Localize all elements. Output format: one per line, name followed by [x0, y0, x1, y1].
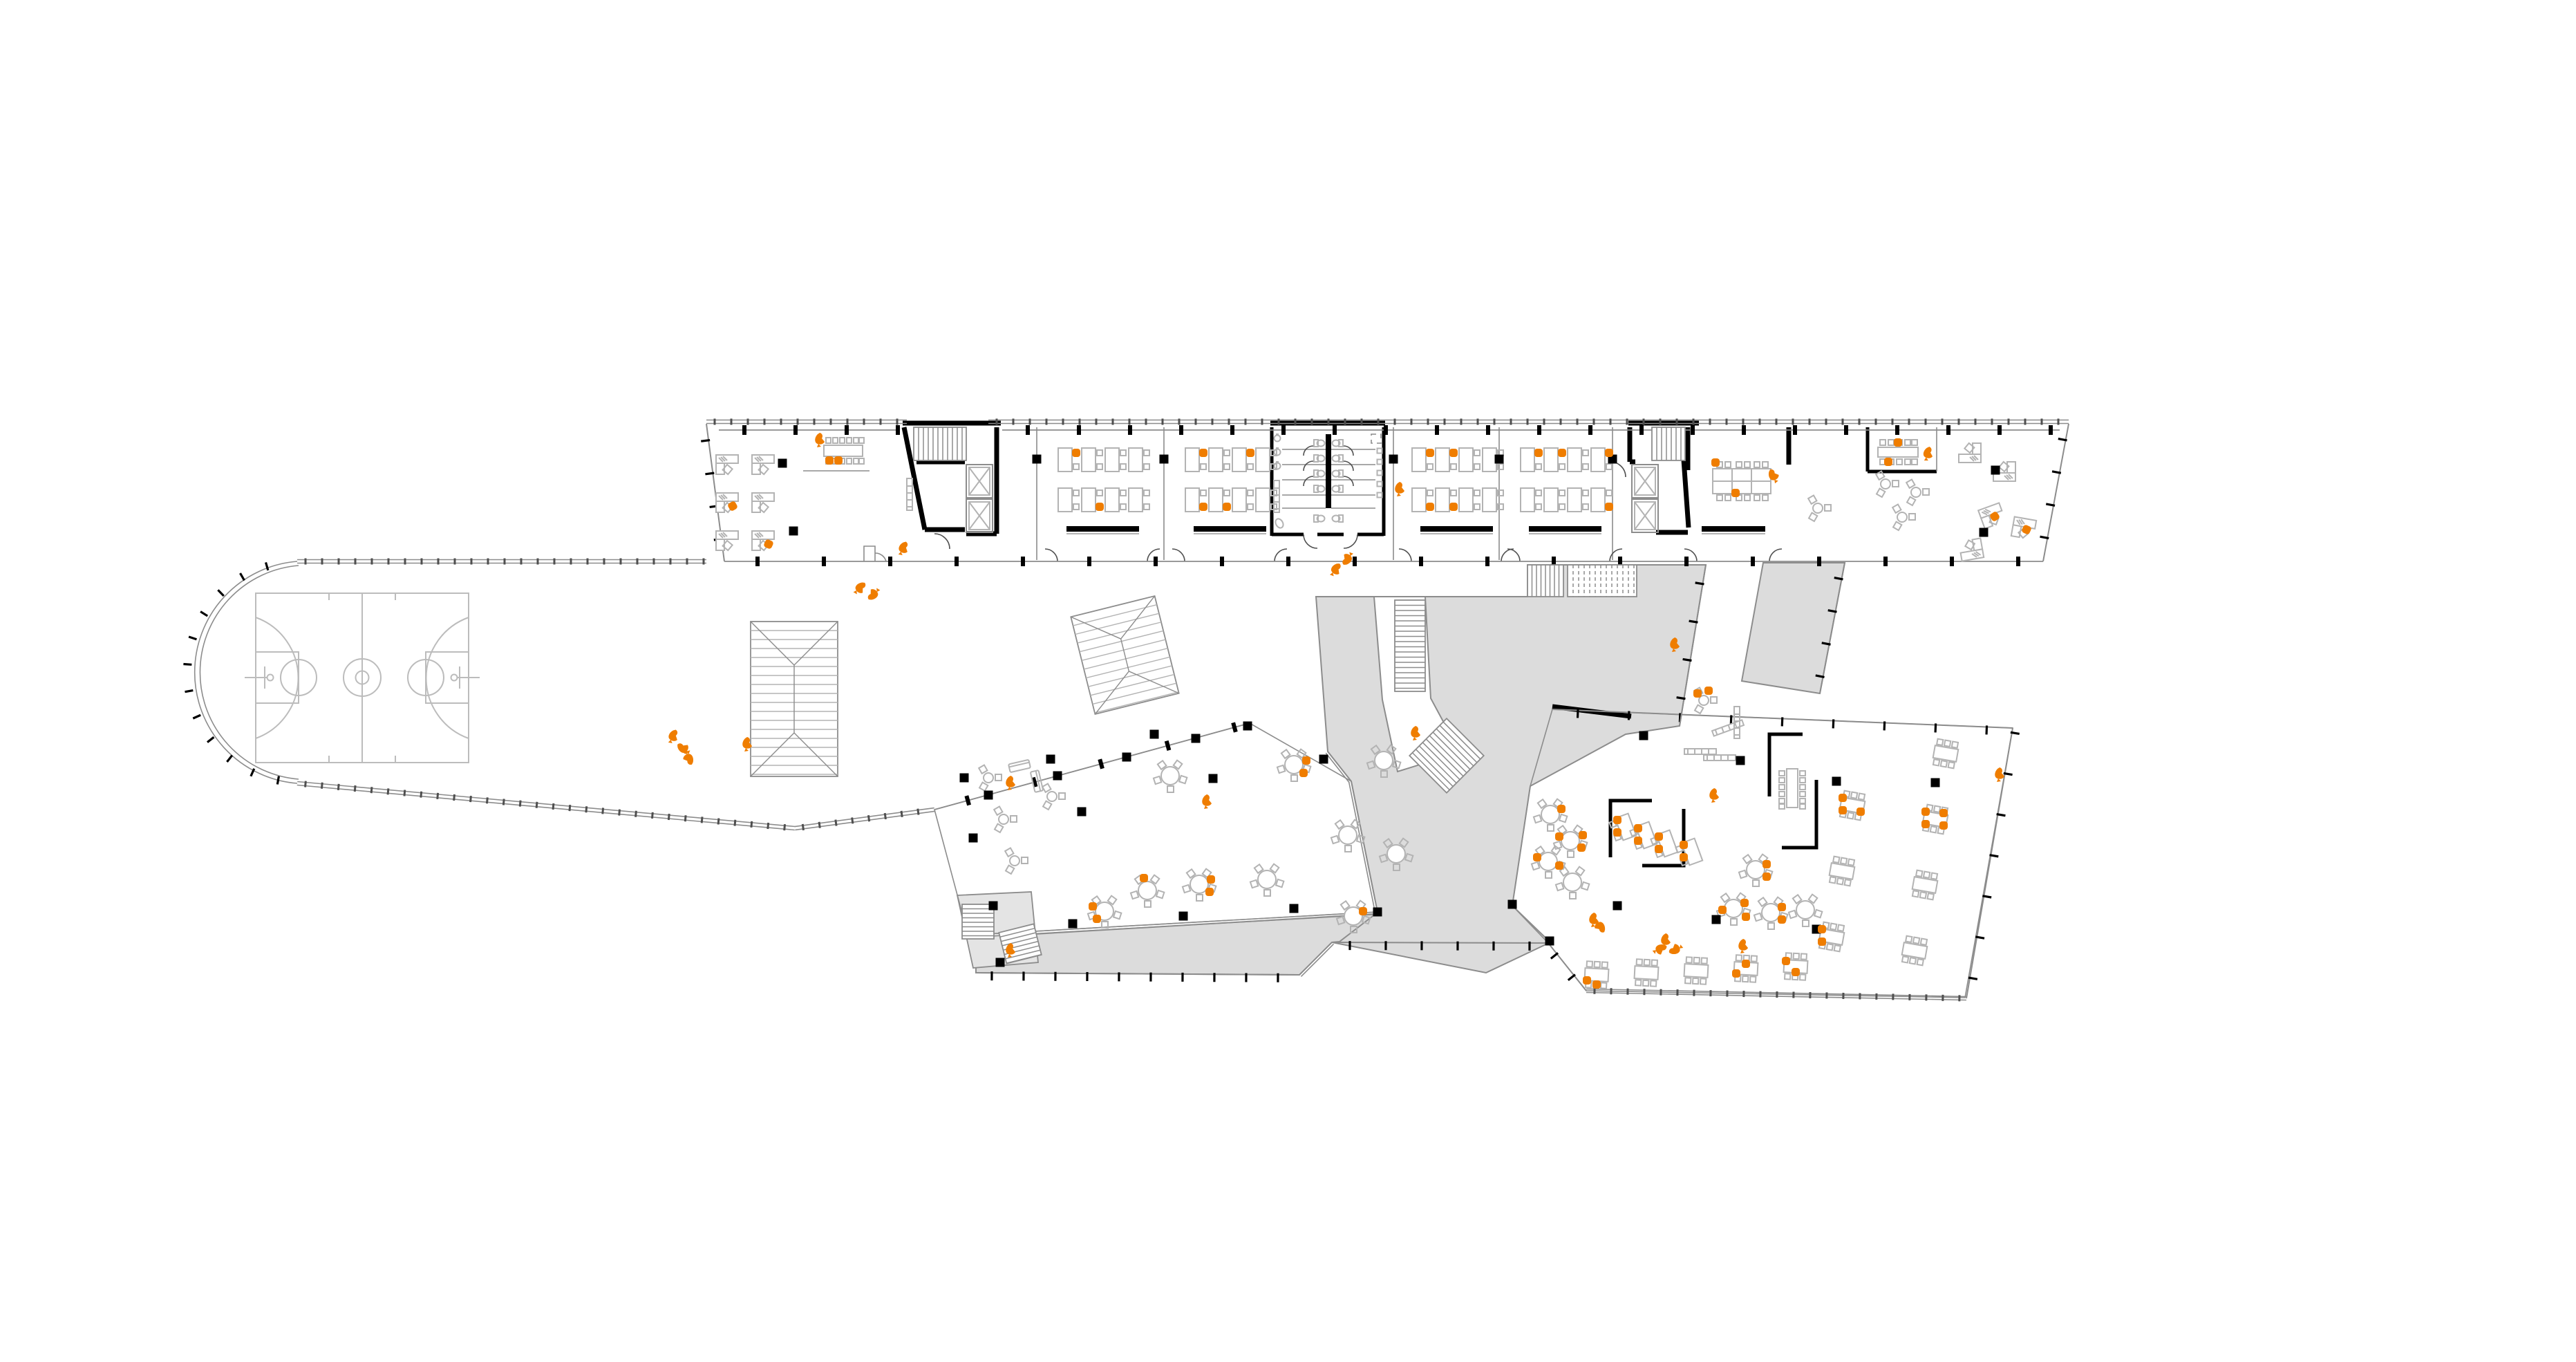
- skylight-hatch: [751, 622, 838, 776]
- desk-pair: [1209, 448, 1230, 472]
- chair-o: [1693, 689, 1702, 698]
- strip-entrance-jog: [864, 546, 886, 561]
- chair-o: [1093, 915, 1101, 923]
- chair-o: [1655, 832, 1663, 841]
- chair-o: [1782, 957, 1790, 965]
- chair-o: [1579, 831, 1587, 839]
- chair-o: [1762, 873, 1771, 881]
- table6: [1828, 856, 1856, 886]
- col: [1639, 731, 1648, 740]
- rtable5: [1250, 864, 1284, 896]
- person-o: [815, 433, 825, 447]
- ldesk: [1959, 443, 1981, 463]
- chair-o: [1533, 853, 1541, 861]
- elev: [966, 499, 993, 532]
- chair-o: [1613, 816, 1621, 824]
- stair-flight: [1652, 427, 1685, 460]
- chair-o: [1711, 458, 1720, 467]
- col: [1033, 455, 1042, 464]
- wc: [1333, 470, 1344, 477]
- desk-pair: [1105, 448, 1126, 472]
- chair-o: [1921, 808, 1930, 816]
- col: [1319, 755, 1328, 764]
- stair-flight: [1395, 600, 1425, 691]
- person-o: [896, 540, 910, 557]
- rtable5: [1183, 869, 1216, 901]
- gym-wing-tip-inner: [200, 566, 299, 779]
- col: [984, 791, 993, 800]
- chair-o: [1939, 821, 1948, 830]
- chair-o: [1199, 449, 1207, 457]
- chair-o: [1140, 874, 1148, 882]
- person-o: [865, 586, 881, 603]
- desk-pair: [1082, 448, 1102, 472]
- rtable3: [1042, 784, 1065, 810]
- rtable3: [1005, 848, 1028, 874]
- chair-o: [825, 456, 834, 465]
- rtable3: [1808, 496, 1831, 521]
- urinal: [1378, 482, 1382, 487]
- chair-o: [1680, 853, 1688, 861]
- chair-o: [1884, 458, 1892, 466]
- chair-o: [1732, 969, 1740, 978]
- desk-pair: [1521, 488, 1541, 512]
- chair-o: [1605, 503, 1613, 511]
- desk-pair: [1568, 448, 1588, 472]
- shelf: [1704, 755, 1736, 761]
- col: [1980, 528, 1989, 537]
- elev: [966, 465, 993, 498]
- wc: [1314, 470, 1325, 477]
- chair-o: [1555, 861, 1563, 870]
- chair-o: [1072, 449, 1080, 457]
- chair-o: [1089, 902, 1097, 911]
- chair-o: [1207, 875, 1215, 884]
- col: [1931, 778, 1940, 787]
- chair-o: [1839, 806, 1847, 814]
- chair-o: [1199, 503, 1207, 511]
- wc: [1333, 455, 1344, 462]
- col: [789, 527, 798, 536]
- person-o: [1709, 788, 1719, 803]
- stair-flight: [1568, 565, 1637, 597]
- cleaners-sink: [1274, 517, 1285, 529]
- stair-flight: [1527, 565, 1563, 597]
- urinal: [1378, 449, 1382, 454]
- desk-pair: [1568, 488, 1588, 512]
- chair-o: [1592, 980, 1601, 989]
- col: [1243, 722, 1252, 731]
- col: [1373, 908, 1382, 917]
- table6: [1911, 870, 1939, 899]
- col: [1991, 466, 2000, 475]
- tgrid: [1713, 462, 1771, 501]
- chair-o: [1205, 888, 1214, 896]
- chair-o: [1718, 906, 1727, 914]
- person-o: [1995, 767, 2004, 782]
- col: [1832, 777, 1841, 786]
- upper-void-patch: [1742, 563, 1845, 693]
- chair-o: [1449, 449, 1458, 457]
- table6: [1932, 738, 1959, 768]
- col: [996, 958, 1005, 967]
- desk-pair: [1058, 488, 1079, 512]
- col: [1209, 774, 1218, 783]
- rtable3: [994, 807, 1017, 832]
- rtable5: [1556, 867, 1589, 899]
- chair-o: [1778, 903, 1786, 911]
- col: [969, 834, 978, 843]
- chair-o: [1359, 907, 1367, 915]
- col: [1389, 455, 1398, 464]
- wc: [1333, 440, 1344, 447]
- col: [1712, 915, 1721, 924]
- table6: [1733, 955, 1758, 982]
- chair-o: [1818, 925, 1826, 933]
- col: [1053, 772, 1062, 781]
- wc: [1314, 515, 1325, 522]
- col: [778, 459, 787, 468]
- desk-pair: [1544, 488, 1565, 512]
- col: [1179, 912, 1188, 921]
- chair-o: [1655, 845, 1663, 853]
- desk-pair: [1483, 488, 1503, 512]
- chair-o: [1449, 503, 1458, 511]
- chair-o: [1426, 503, 1434, 511]
- chair-o: [1634, 837, 1642, 845]
- person-o: [675, 740, 693, 756]
- chair-o: [1704, 687, 1713, 695]
- chair-o: [1680, 841, 1688, 849]
- chair-o: [1778, 915, 1786, 924]
- wc-duct: [1371, 434, 1381, 443]
- rtable5: [1739, 855, 1772, 886]
- chair-o: [1939, 809, 1948, 817]
- chair-o: [1742, 913, 1750, 921]
- shelf: [1684, 749, 1716, 754]
- skylight-hatch: [1071, 596, 1178, 714]
- chair-o: [1921, 820, 1930, 828]
- desk-pair: [1459, 488, 1480, 512]
- wc-core-center-wall: [1326, 434, 1331, 508]
- chair-o: [1818, 937, 1826, 946]
- wc: [1333, 515, 1344, 522]
- chair-o: [1096, 503, 1104, 511]
- chair-o: [1792, 968, 1800, 976]
- sink: [1275, 434, 1281, 442]
- col: [1150, 730, 1159, 739]
- rtable5: [1331, 820, 1364, 852]
- floor-plan-page: [0, 0, 2576, 1362]
- desk-pair: [1459, 448, 1480, 472]
- chair-o: [1555, 832, 1563, 841]
- rtable3: [979, 765, 1002, 791]
- chair-o: [1558, 449, 1566, 457]
- table6: [1684, 957, 1709, 985]
- table6: [1901, 935, 1928, 965]
- basketball-court: [245, 593, 480, 763]
- urinal: [1378, 471, 1382, 476]
- chair-o: [763, 539, 774, 550]
- person-o: [852, 580, 868, 597]
- chair-o: [1731, 489, 1740, 497]
- col: [1122, 753, 1131, 762]
- chair-o: [1302, 756, 1310, 765]
- sofa: [1008, 760, 1031, 772]
- col: [960, 774, 969, 783]
- col: [989, 902, 998, 911]
- chair-o: [1557, 805, 1566, 813]
- ldesk: [752, 455, 774, 474]
- person-o: [1922, 446, 1934, 462]
- chair-o: [1740, 899, 1749, 907]
- ldesk: [752, 493, 774, 512]
- wc: [1314, 485, 1325, 492]
- col: [1290, 904, 1299, 913]
- chair-o: [1762, 860, 1771, 868]
- chair-o: [1634, 824, 1642, 832]
- person-o: [666, 728, 680, 745]
- wc: [1333, 485, 1344, 492]
- col: [1069, 920, 1078, 929]
- desk-pair: [1675, 839, 1702, 868]
- col: [1613, 902, 1622, 911]
- ldesk: [716, 531, 738, 550]
- chair-o: [1223, 503, 1231, 511]
- chair-o: [1583, 976, 1591, 985]
- desk-pair: [1105, 488, 1126, 512]
- urinal: [1378, 460, 1382, 465]
- rtable5: [1789, 895, 1822, 926]
- chair-o: [834, 456, 843, 465]
- rtable3: [1876, 472, 1899, 497]
- shelf: [907, 478, 912, 510]
- rtable5: [1754, 897, 1787, 929]
- rtable5: [1154, 761, 1187, 792]
- chair-o: [727, 501, 738, 512]
- table12: [1779, 769, 1805, 809]
- wc: [1314, 440, 1325, 447]
- chair-o: [1894, 438, 1902, 447]
- stair-core-1-door: [934, 534, 950, 549]
- rtable5: [1088, 896, 1121, 928]
- chair-o: [1577, 843, 1586, 852]
- person-o: [1738, 939, 1748, 953]
- col: [1545, 937, 1554, 946]
- rtable3: [1906, 480, 1929, 505]
- floor-plan-drawing: [0, 0, 2576, 1362]
- rtable3: [1892, 505, 1915, 530]
- stair-flight: [914, 427, 966, 460]
- col: [1192, 734, 1201, 743]
- col: [1078, 808, 1087, 817]
- chair-o: [1426, 449, 1434, 457]
- chair-o: [1534, 449, 1543, 457]
- ldesk: [716, 455, 738, 474]
- table6: [1634, 959, 1659, 987]
- col: [1160, 455, 1169, 464]
- ldesk: [1959, 538, 1984, 561]
- desk-pair: [1129, 448, 1149, 472]
- person-o: [1395, 482, 1404, 496]
- elev: [1632, 499, 1658, 532]
- chair-o: [1246, 449, 1254, 457]
- wc: [1314, 455, 1325, 462]
- col: [1495, 455, 1504, 464]
- person-o: [1328, 561, 1344, 579]
- skylight-hatches: [751, 596, 1179, 776]
- col: [1736, 756, 1745, 765]
- chair-o: [1742, 960, 1750, 968]
- chair-o: [1605, 449, 1613, 457]
- chair-o: [1299, 769, 1308, 777]
- desk-pair: [1232, 488, 1253, 512]
- chair-o: [1613, 828, 1621, 837]
- chair-o: [1856, 808, 1865, 816]
- urinal: [1378, 493, 1382, 498]
- col: [1508, 900, 1517, 909]
- chair-o: [1839, 794, 1847, 802]
- person-o: [1339, 550, 1355, 567]
- elev: [1632, 465, 1658, 498]
- desk-pair: [1608, 814, 1636, 843]
- person-o: [1202, 794, 1212, 809]
- desk-pair: [1129, 488, 1149, 512]
- col: [1046, 755, 1055, 764]
